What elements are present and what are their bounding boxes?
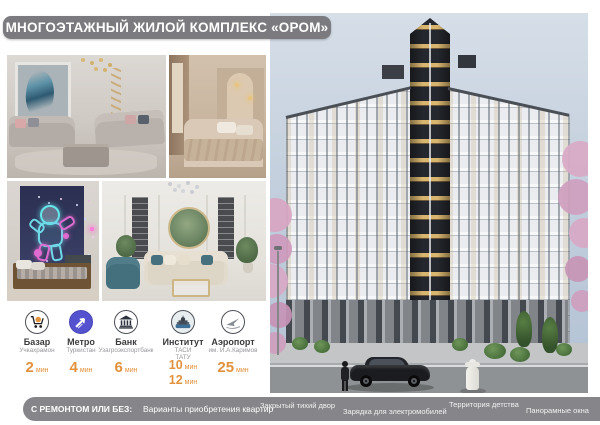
car-wheel [360, 375, 372, 387]
pedestrian [340, 361, 350, 391]
time-unit-2: мин [185, 379, 198, 386]
round-green-mirror [168, 207, 210, 249]
rooftop-structure [458, 55, 476, 68]
coffee-table [63, 144, 109, 164]
bush [556, 343, 572, 356]
pendant-light [248, 96, 252, 100]
feature-quiet-yard: Закрытый тихий двор [260, 401, 335, 410]
plant [236, 237, 258, 263]
bush [314, 340, 330, 353]
car-wheel [408, 375, 420, 387]
travel-time: 6мин [94, 359, 158, 377]
feature-panoramic-windows: Панорамные окна [526, 406, 589, 415]
time-unit: мин [36, 367, 49, 374]
teal-pillow [201, 255, 213, 265]
amenity-name: Аэропорт [201, 337, 265, 347]
title-banner: МНОГОЭТАЖНЫЙ ЖИЛОЙ КОМПЛЕКС «ОРОМ» [3, 16, 331, 39]
pillow [15, 119, 26, 128]
complex-title: МНОГОЭТАЖНЫЙ ЖИЛОЙ КОМПЛЕКС «ОРОМ» [6, 20, 329, 35]
amenity-bank: Банк Узагроэкспортбанк 6мин [94, 310, 158, 388]
pedestrian-body [341, 367, 349, 381]
chandelier [81, 58, 85, 62]
pillow [217, 122, 236, 133]
pillow [28, 118, 39, 127]
street-lamp [277, 251, 279, 355]
amenity-sublabel: Узагроэкспортбанк [94, 347, 158, 354]
bottom-banner: С РЕМОНТОМ ИЛИ БЕЗ: Варианты приобретени… [23, 397, 600, 421]
feather-painting [23, 69, 57, 118]
time-value: 25 [217, 359, 234, 376]
teal-pillow [151, 255, 163, 265]
renovation-option-highlight: С РЕМОНТОМ ИЛИ БЕЗ: [31, 404, 132, 414]
pillow [31, 262, 45, 270]
time-unit: мин [125, 367, 138, 374]
neon-accent [63, 233, 69, 239]
window [172, 63, 183, 133]
time-value-2: 12 [169, 373, 183, 387]
blanket [184, 139, 263, 161]
photo-living-room-2 [102, 181, 266, 301]
white-statue [462, 359, 484, 393]
rooftop-structure [382, 65, 404, 79]
bush [292, 337, 308, 350]
pillow [236, 125, 253, 135]
neon-shelf-light [90, 227, 94, 231]
teal-armchair [106, 257, 140, 289]
feature-kids-area: Территория детства [449, 400, 519, 409]
time-value: 10 [169, 358, 183, 372]
airport-icon [221, 310, 245, 334]
bush [484, 343, 506, 359]
glass-coffee-table [172, 279, 210, 297]
travel-time: 25мин [201, 359, 265, 377]
time-unit: мин [236, 367, 249, 374]
plant-pot [243, 263, 253, 273]
photo-living-room-1 [7, 55, 166, 178]
time-unit: мин [80, 367, 93, 374]
photo-bedroom [169, 55, 266, 178]
time-value: 4 [70, 359, 78, 376]
pillow [138, 115, 149, 124]
floor [7, 289, 99, 301]
bush [510, 347, 530, 362]
bank-icon [114, 310, 138, 334]
gold-wall-decor [111, 68, 121, 114]
bush [452, 338, 468, 351]
pillow [178, 255, 190, 265]
feature-ev-charging: Зарядка для электромобилей [343, 407, 447, 416]
amenity-airport: Аэропорт им. И.А.Каримов 25мин [201, 310, 265, 388]
pendant-light [235, 83, 239, 87]
metro-icon [69, 310, 93, 334]
photo-kids-room [7, 181, 99, 301]
plant [116, 235, 136, 257]
wall-trim [158, 195, 160, 259]
chandelier [168, 182, 172, 186]
pillow [16, 260, 32, 269]
dark-mirror-panel [218, 197, 234, 259]
pillow [164, 255, 176, 265]
amenity-sublabel: им. И.А.Каримов [201, 347, 265, 354]
stars [38, 196, 40, 198]
building-render-photo [270, 13, 588, 393]
institute-icon [171, 310, 195, 334]
time-value: 6 [115, 359, 123, 376]
tree [542, 317, 558, 353]
neon-accent [34, 249, 42, 257]
car-shadow [346, 383, 434, 392]
real-estate-flyer: МНОГОЭТАЖНЫЙ ЖИЛОЙ КОМПЛЕКС «ОРОМ» [0, 0, 600, 425]
tree [516, 311, 532, 347]
building-corner-edge [429, 23, 431, 345]
statue-body [466, 366, 479, 390]
pedestrian-legs [342, 380, 348, 391]
pillow [125, 115, 136, 124]
time-value: 2 [26, 359, 34, 376]
market-cart-icon [25, 310, 49, 334]
amenity-name: Банк [94, 337, 158, 347]
time-unit: мин [185, 364, 198, 371]
renovation-option-text: Варианты приобретения квартир [143, 404, 273, 414]
